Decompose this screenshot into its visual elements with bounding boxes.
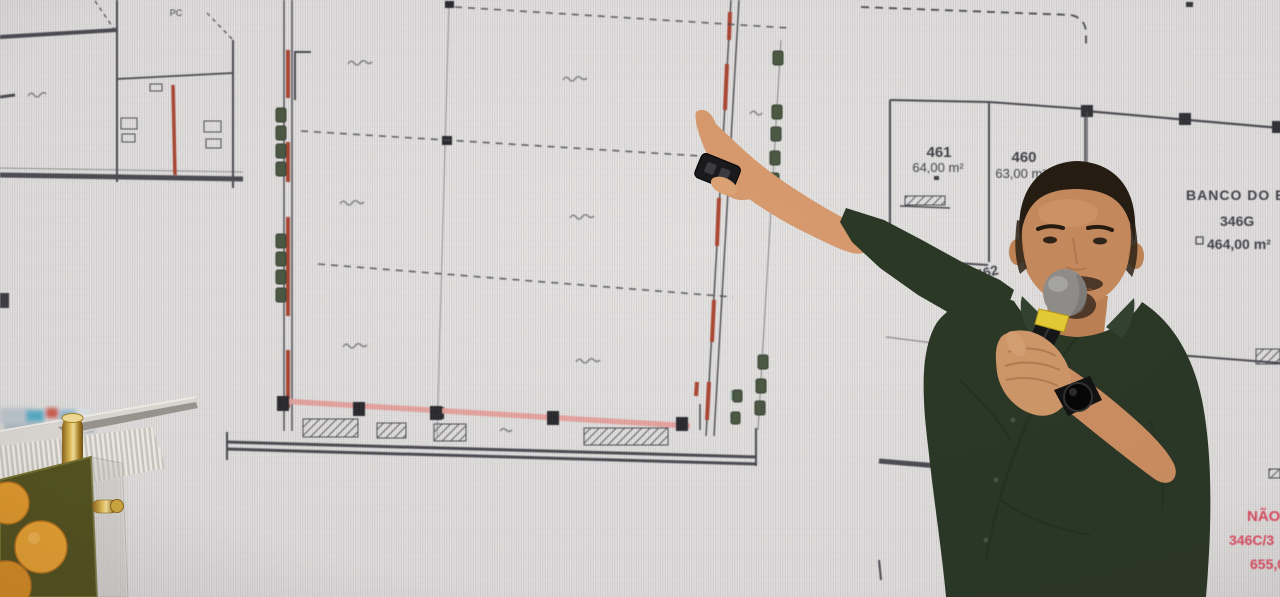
photo-presentation-scene: PC xyxy=(0,0,1280,597)
scene-canvas: PC xyxy=(0,0,1280,597)
photo-vignette xyxy=(0,0,1280,597)
